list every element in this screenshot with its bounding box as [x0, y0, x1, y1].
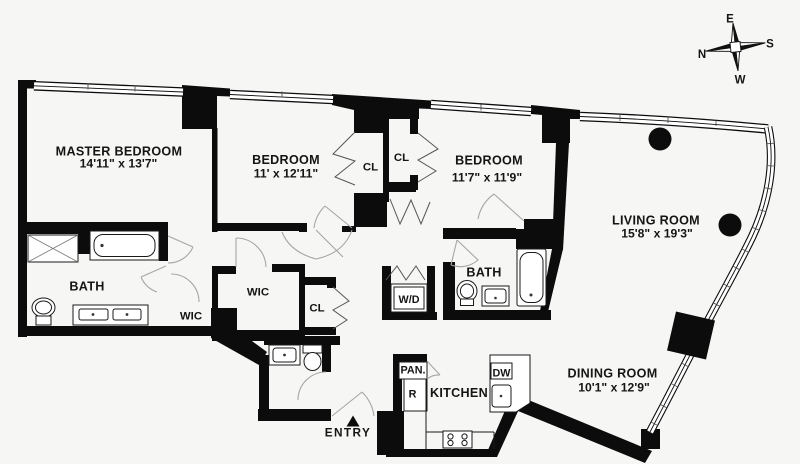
- svg-text:S: S: [766, 39, 774, 51]
- svg-text:10'1" x 12'9": 10'1" x 12'9": [578, 381, 650, 395]
- svg-text:R: R: [409, 389, 417, 401]
- svg-text:W: W: [735, 75, 746, 87]
- svg-text:CL: CL: [363, 162, 378, 174]
- svg-text:15'8" x 19'3": 15'8" x 19'3": [621, 227, 693, 241]
- svg-text:DW: DW: [493, 368, 512, 380]
- svg-text:PAN.: PAN.: [401, 365, 426, 377]
- svg-text:11' x 12'11": 11' x 12'11": [254, 167, 318, 181]
- svg-text:CL: CL: [309, 303, 324, 315]
- svg-text:W/D: W/D: [399, 294, 420, 306]
- svg-text:KITCHEN: KITCHEN: [430, 386, 488, 400]
- svg-text:DINING ROOM: DINING ROOM: [567, 367, 657, 381]
- svg-text:E: E: [726, 14, 734, 26]
- svg-text:BEDROOM: BEDROOM: [252, 153, 320, 167]
- svg-text:CL: CL: [394, 152, 409, 164]
- svg-text:BATH: BATH: [69, 280, 104, 294]
- svg-text:N: N: [698, 49, 706, 61]
- svg-text:WIC: WIC: [180, 311, 202, 323]
- svg-text:BEDROOM: BEDROOM: [455, 154, 523, 168]
- svg-text:11'7" x 11'9": 11'7" x 11'9": [452, 171, 522, 185]
- svg-text:ENTRY: ENTRY: [325, 426, 372, 440]
- svg-text:LIVING ROOM: LIVING ROOM: [612, 214, 700, 228]
- svg-text:WIC: WIC: [247, 287, 269, 299]
- svg-text:BATH: BATH: [466, 266, 501, 280]
- svg-text:14'11" x 13'7": 14'11" x 13'7": [80, 157, 158, 171]
